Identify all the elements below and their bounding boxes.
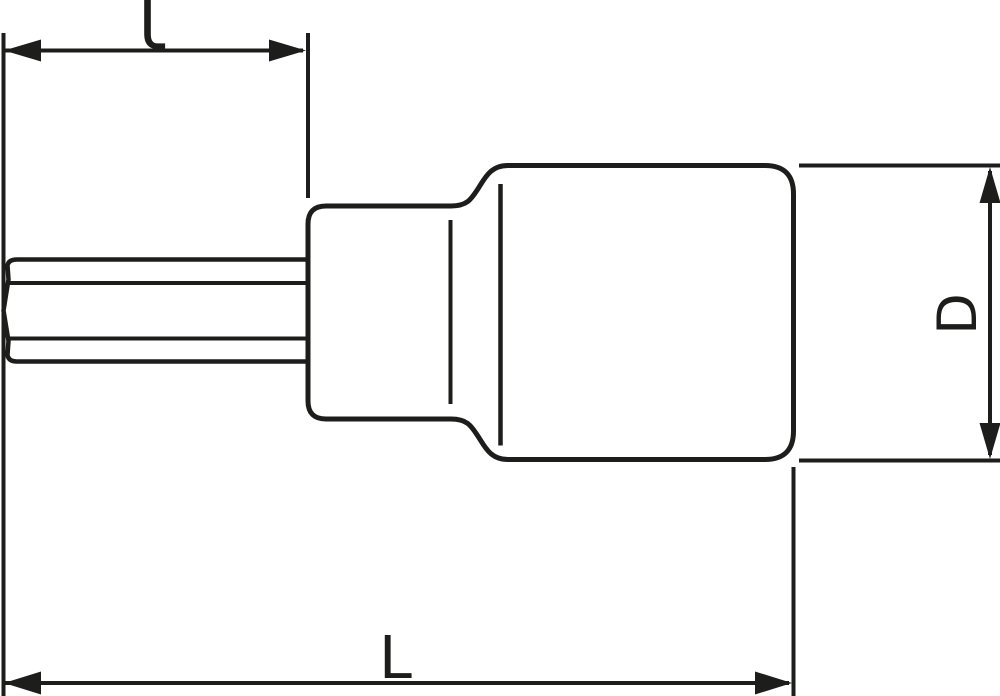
hex-bit-socket-drawing — [0, 0, 1000, 696]
technical-drawing-canvas: l L D — [0, 0, 1000, 696]
arrowhead-left-icon — [4, 672, 41, 695]
arrowhead-up-icon — [980, 167, 1000, 203]
diameter-label: D — [931, 293, 985, 335]
hex-bit-outline — [4, 260, 310, 362]
arrowhead-down-icon — [980, 423, 1000, 459]
socket-body — [308, 166, 794, 460]
overall-length-label: L — [379, 628, 412, 687]
arrowhead-left-icon — [4, 40, 41, 62]
insert-length-label: l — [127, 0, 173, 61]
socket-outline — [308, 166, 794, 460]
arrowhead-right-icon — [755, 672, 792, 695]
hex-bit-shaft — [4, 260, 310, 362]
arrowhead-right-icon — [269, 40, 306, 62]
